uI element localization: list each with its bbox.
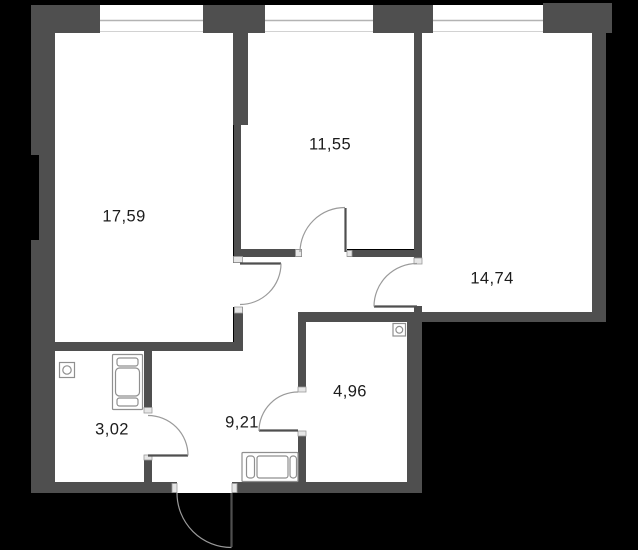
facade-notch xyxy=(31,155,39,240)
floor-plan-drawing xyxy=(0,0,638,550)
window xyxy=(265,5,373,33)
wall-segment xyxy=(234,249,302,257)
wall-segment xyxy=(407,322,422,493)
door-opening xyxy=(144,413,152,455)
ventilation-icon xyxy=(393,324,406,337)
door-opening xyxy=(233,263,243,307)
wall-segment xyxy=(298,322,306,392)
wall-cap xyxy=(347,251,352,257)
door-opening xyxy=(302,249,347,257)
wall-segment xyxy=(592,3,606,322)
wall-segment xyxy=(232,482,422,493)
wall-segment xyxy=(31,482,177,493)
room-area-label: 14,74 xyxy=(470,270,513,289)
door-opening xyxy=(414,263,422,312)
floor-plan: 17,59 11,55 14,74 4,96 9,21 3,02 xyxy=(0,0,638,550)
floor-area xyxy=(306,322,407,482)
windows xyxy=(100,5,543,33)
ventilation-icon xyxy=(60,363,75,378)
window xyxy=(433,5,543,33)
wall-segment xyxy=(347,250,422,257)
door-opening xyxy=(298,392,306,431)
wall-cap xyxy=(235,307,243,313)
window xyxy=(100,5,203,33)
wall-segment xyxy=(414,33,422,258)
wall-segment xyxy=(31,5,100,33)
wall-cap xyxy=(298,431,306,436)
wall-segment xyxy=(55,342,243,351)
wall-segment xyxy=(233,33,248,125)
wall-segment xyxy=(373,5,433,33)
wall-cap xyxy=(234,257,243,263)
wall-cap xyxy=(298,387,306,392)
floor-area xyxy=(55,33,233,342)
wall-segment xyxy=(298,431,306,482)
wall-segment xyxy=(31,5,55,493)
appliance-icon xyxy=(113,355,143,410)
wall-cap xyxy=(232,484,237,493)
room-area-label: 4,96 xyxy=(333,383,367,402)
wall-segment xyxy=(298,312,606,322)
room-area-label: 17,59 xyxy=(102,208,145,227)
room-area-label: 9,21 xyxy=(225,414,259,433)
room-area-label: 3,02 xyxy=(95,421,129,440)
room-area-label: 11,55 xyxy=(309,136,351,155)
wall-cap xyxy=(172,484,177,493)
wall-segment xyxy=(144,351,152,413)
cabinet-icon xyxy=(242,453,298,482)
wall-cap xyxy=(144,408,152,414)
wall-segment xyxy=(234,125,241,252)
door-opening xyxy=(177,482,232,493)
wall-segment xyxy=(203,5,265,33)
